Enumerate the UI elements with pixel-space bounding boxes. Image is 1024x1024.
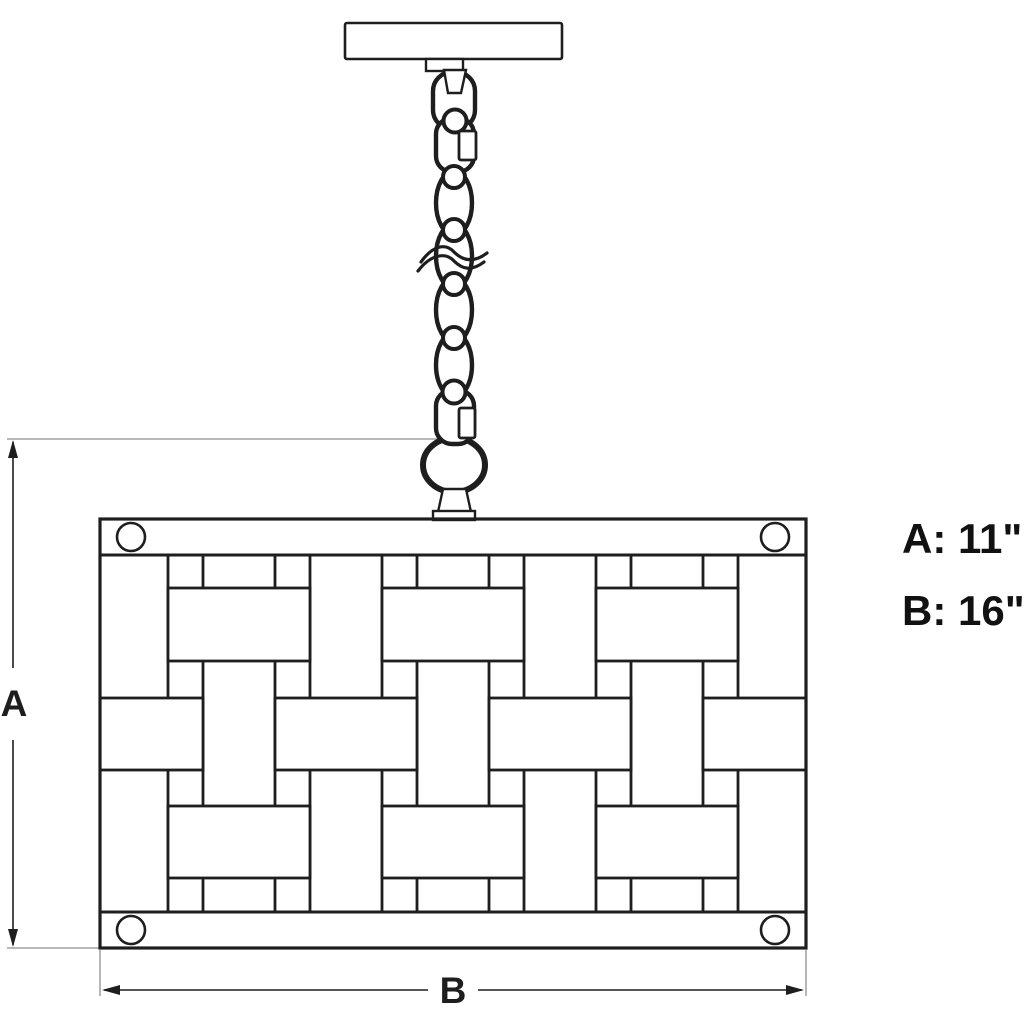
chain-join-4 — [443, 327, 465, 349]
chain-join-2 — [443, 219, 465, 241]
chain-join-5 — [443, 381, 466, 404]
ceiling-plate — [345, 23, 562, 59]
dim-b-arrow-right — [786, 985, 804, 995]
hanger-assembly — [423, 381, 485, 521]
weave-horizontal-strip — [100, 698, 203, 770]
weave-horizontal-strip — [489, 698, 631, 770]
screw-top-right — [761, 523, 789, 551]
dim-a-arrow-up — [8, 440, 18, 458]
mount-nipple — [444, 70, 466, 93]
weave-horizontal-strip — [275, 698, 417, 770]
weave-horizontal-strip — [382, 806, 524, 878]
dim-a-label: A — [1, 683, 28, 724]
spec-labels: A: 11" B: 16" — [902, 515, 1024, 634]
pendant-light-dimension-drawing: A B — [0, 0, 1024, 1024]
chain-join-3 — [443, 273, 465, 295]
shade — [100, 519, 806, 948]
spec-b-label: B: 16" — [902, 587, 1024, 634]
screw-bottom-left — [117, 916, 145, 944]
weave-horizontal-strip — [703, 698, 806, 770]
spec-a-label: A: 11" — [902, 515, 1022, 562]
weave-horizontal-strip — [168, 806, 310, 878]
ceiling-mount — [345, 23, 562, 71]
weave-horizontal-strip — [382, 588, 524, 661]
dim-b-arrow-left — [102, 985, 120, 995]
screw-top-left — [117, 523, 145, 551]
dim-a-arrow-down — [8, 929, 18, 947]
weave-horizontal-strip — [596, 806, 738, 878]
quick-link-bottom-sleeve — [459, 408, 475, 438]
weave-horizontal-strip — [168, 588, 310, 661]
quick-link-top-sleeve — [459, 131, 476, 160]
dim-b-label: B — [440, 970, 467, 1011]
screw-bottom-right — [761, 916, 789, 944]
weave-horizontal-strip — [596, 588, 738, 661]
diagram-canvas: A B — [0, 0, 1024, 1024]
dimension-b: B — [100, 950, 806, 1011]
chain-join-0 — [444, 110, 467, 133]
finial-cup — [438, 489, 471, 512]
chain-join-1 — [443, 166, 465, 188]
hanging-chain — [418, 70, 487, 397]
